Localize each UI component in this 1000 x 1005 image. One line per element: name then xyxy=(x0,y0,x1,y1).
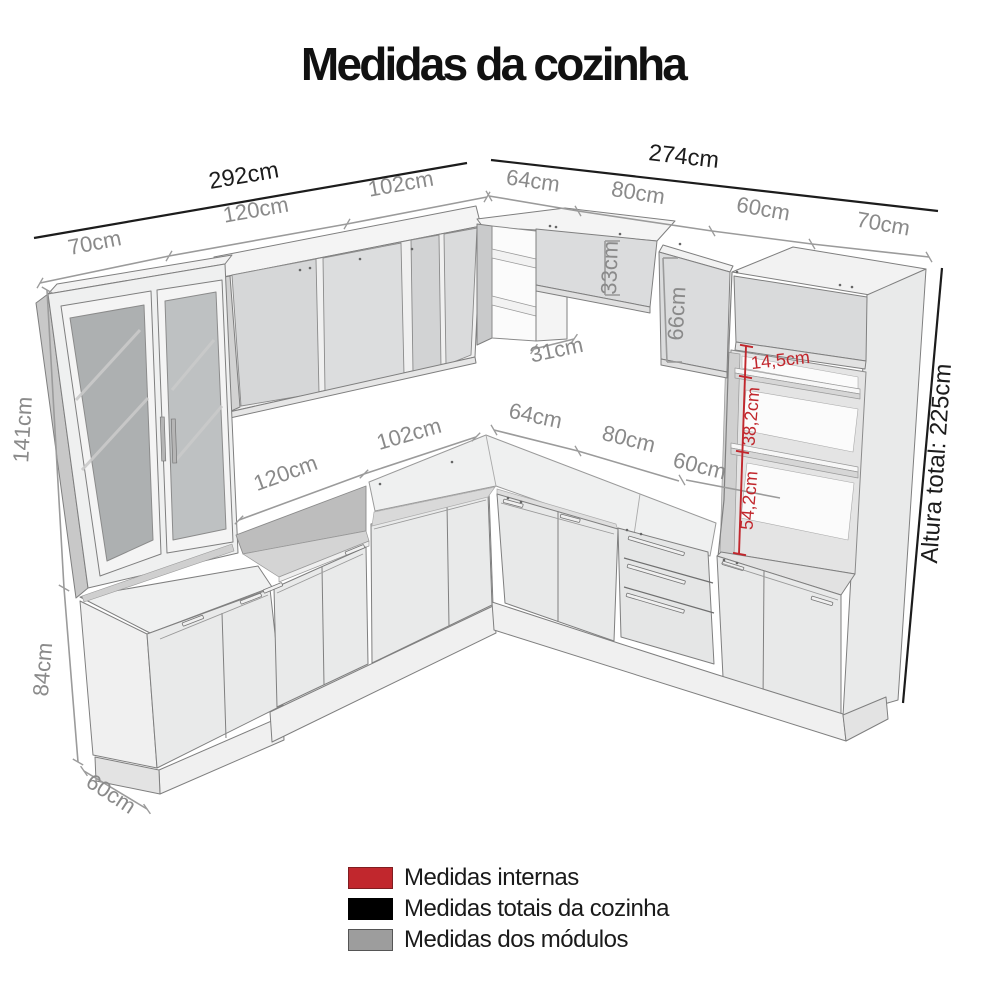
svg-text:33cm: 33cm xyxy=(596,240,623,295)
svg-text:80cm: 80cm xyxy=(610,176,667,209)
svg-text:70cm: 70cm xyxy=(855,207,912,241)
svg-text:Altura total: 225cm: Altura total: 225cm xyxy=(916,363,957,565)
svg-text:274cm: 274cm xyxy=(647,139,720,173)
svg-text:64cm: 64cm xyxy=(507,398,565,434)
svg-text:120cm: 120cm xyxy=(250,450,321,496)
svg-text:141cm: 141cm xyxy=(8,396,37,463)
svg-text:120cm: 120cm xyxy=(221,192,290,228)
svg-text:84cm: 84cm xyxy=(28,642,57,698)
svg-text:80cm: 80cm xyxy=(600,420,658,457)
svg-text:102cm: 102cm xyxy=(366,166,435,202)
svg-text:64cm: 64cm xyxy=(505,164,562,196)
svg-text:66cm: 66cm xyxy=(663,286,691,341)
svg-text:60cm: 60cm xyxy=(735,192,792,226)
svg-text:292cm: 292cm xyxy=(207,156,281,194)
svg-text:102cm: 102cm xyxy=(374,413,444,455)
svg-text:60cm: 60cm xyxy=(671,447,729,484)
